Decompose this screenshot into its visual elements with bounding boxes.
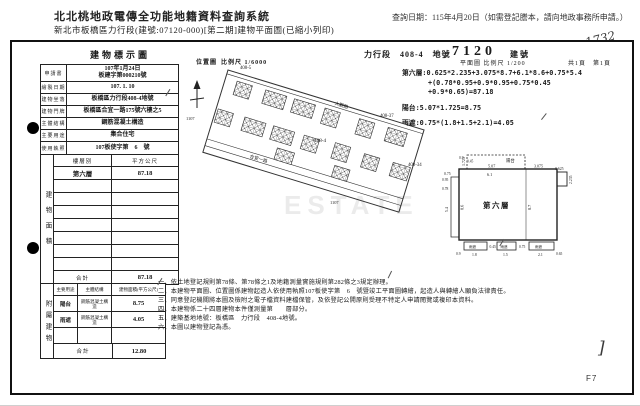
info-label: 繪製日期 xyxy=(41,82,67,94)
empty-cell xyxy=(54,232,112,245)
north-arrow-icon xyxy=(190,80,204,108)
annex-total-row: 合計12.80 xyxy=(54,344,165,358)
floor-header-row: 樓層別平方公尺 xyxy=(54,155,178,167)
note-line: 四、本建物係二十四層建物本件僅測量第 層部分。 xyxy=(158,305,574,314)
empty-cell xyxy=(54,245,112,258)
balcony-outline xyxy=(467,155,525,169)
annex-row xyxy=(54,328,165,344)
map-title: 位置圖比例尺 1/6000 xyxy=(196,58,267,66)
annex-structure xyxy=(78,328,112,344)
info-row: 主體結構鋼筋混凝土構造 xyxy=(41,118,178,130)
location-map: 位置圖比例尺 1/6000 大觀路 合宜一路 408-5 408-37 1107 xyxy=(184,54,442,266)
empty-cell xyxy=(112,245,178,258)
floor-header: 樓層別 xyxy=(54,155,112,167)
dim-09: 0.9 xyxy=(459,156,464,160)
info-row: 繪製日期107. 1. 10 xyxy=(41,82,178,94)
floor-empty-row xyxy=(54,206,178,219)
area-header: 平方公尺 xyxy=(112,155,178,167)
lot-1107-w: 1107 xyxy=(186,116,195,121)
handwritten-bracket: ] xyxy=(598,338,605,358)
canopy-label-3: 雨遮 xyxy=(535,244,543,249)
canopy-label-2: 雨遮 xyxy=(501,244,509,249)
empty-cell xyxy=(112,219,178,232)
info-value: 107年1月24日 板建字第000210號 xyxy=(67,65,178,82)
dim-078: 0.78 xyxy=(442,187,448,191)
annex-use: 雨遮 xyxy=(54,312,78,328)
info-label: 使用執照 xyxy=(41,142,67,154)
info-row: 申請書107年1月24日 板建字第000210號 xyxy=(41,65,178,82)
info-value: 板橋區力行段408-4地號 xyxy=(67,94,178,106)
info-row: 建物坐落板橋區力行段408-4地號 xyxy=(41,94,178,106)
info-label: 建物門牌 xyxy=(41,106,67,118)
dim-main-h: 8.6 xyxy=(460,205,465,210)
page-code: F7 xyxy=(586,374,597,383)
info-row: 建物門牌板橋區合宜一路175號六樓之5 xyxy=(41,106,178,118)
page-count: 共1頁 第1頁 xyxy=(568,58,611,67)
note-line: 六、本圖以建物登記為憑。 xyxy=(158,323,574,332)
floor-empty-row xyxy=(54,245,178,258)
floor-area-table: 建物面積 樓層別平方公尺第六層87.18合計87.18 xyxy=(40,154,179,285)
floor-empty-row xyxy=(54,219,178,232)
dim-095: 0.95 xyxy=(442,178,448,182)
dim-065: 0.65 xyxy=(556,252,562,256)
basic-info-table: 申請書107年1月24日 板建字第000210號繪製日期107. 1. 10建物… xyxy=(40,64,179,155)
empty-cell xyxy=(54,180,112,193)
dim-075b: 0.75 xyxy=(519,245,525,249)
plan-scale: 比例尺 1/200 xyxy=(484,61,526,67)
empty-cell xyxy=(54,193,112,206)
parcel-label-main: 408-4 xyxy=(314,138,327,144)
annex-structure: 鋼筋混凝土構造 xyxy=(78,296,112,312)
annex-total-value: 12.80 xyxy=(113,344,165,358)
dim-045b: 0.45 xyxy=(490,245,496,249)
scanned-document: 建物標示圖 力行段 408-4 地號 7120 建號 申請書107年1月24日 … xyxy=(10,40,634,395)
dim-09b: 0.9 xyxy=(456,252,461,256)
binder-hole-top xyxy=(27,122,39,134)
query-date: 查詢日期：115年4月20日（如需登記謄本，請向地政事務所申請。） xyxy=(392,12,628,23)
empty-cell xyxy=(112,232,178,245)
dim-balcony-w: 5.07 xyxy=(488,164,495,169)
info-value: 107板使字第 6 號 xyxy=(67,142,178,154)
floor-name: 第六層 xyxy=(54,167,112,180)
system-title: 北北桃地政電傳全功能地籍資料查詢系統 xyxy=(54,8,270,24)
floor-area: 87.18 xyxy=(112,167,178,180)
info-label: 申請書 xyxy=(41,65,67,82)
dim-c1: 1.8 xyxy=(472,253,477,257)
floor-empty-row xyxy=(54,193,178,206)
annex-section-label: 附屬建物 xyxy=(41,284,54,358)
dim-c2: 1.5 xyxy=(503,253,508,257)
dim-east-w: 0.625 xyxy=(555,167,564,171)
query-system-page: 北北桃地政電傳全功能地籍資料查詢系統 查詢日期：115年4月20日（如需登記謄本… xyxy=(0,0,640,406)
annex-row: 陽台鋼筋混凝土構造8.75 xyxy=(54,296,165,312)
doc-title: 建物標示圖 xyxy=(90,48,150,61)
empty-cell xyxy=(112,180,178,193)
info-row: 使用執照107板使字第 6 號 xyxy=(41,142,178,154)
document-subtitle: 新北市板橋區力行段(建號:07120-000)[第二期]建物平面圖(已縮小列印) xyxy=(54,24,334,36)
canopy-label-1: 雨遮 xyxy=(469,244,477,249)
info-label: 主要用途 xyxy=(41,130,67,142)
annex-table: 附屬建物 主要用途主體結構建物面積(平方公尺)陽台鋼筋混凝土構造8.75雨遮鋼筋… xyxy=(40,283,166,359)
annex-use: 陽台 xyxy=(54,296,78,312)
info-value: 集合住宅 xyxy=(67,130,178,142)
annex-row: 雨遮鋼筋混凝土構造4.05 xyxy=(54,312,165,328)
empty-cell xyxy=(54,206,112,219)
lot-1107-ne: 1107 xyxy=(406,122,415,127)
note-line: 二、本建物平面圖、位置圖係建物起造人依使用執照107板使字第 6 號暨竣工平面圖… xyxy=(158,287,574,296)
annex-use-header: 主要用途 xyxy=(54,284,78,296)
annex-rows: 主要用途主體結構建物面積(平方公尺)陽台鋼筋混凝土構造8.75雨遮鋼筋混凝土構造… xyxy=(54,284,165,358)
empty-cell xyxy=(112,193,178,206)
parcel-label-ne: 408-37 xyxy=(380,114,394,119)
annex-header-row: 主要用途主體結構建物面積(平方公尺) xyxy=(54,284,165,296)
parcel-label-nw: 408-5 xyxy=(240,66,252,71)
dim-right-h: 8.7 xyxy=(527,205,532,210)
annex-structure: 鋼筋混凝土構造 xyxy=(78,312,112,328)
floor-empty-row xyxy=(54,258,178,271)
dim-c3: 2.1 xyxy=(538,253,543,257)
empty-cell xyxy=(112,258,178,271)
dim-west-h: 5.4 xyxy=(445,207,449,212)
west-notch-outline xyxy=(451,177,459,237)
floor-row: 第六層87.18 xyxy=(54,167,178,180)
east-annex-outline xyxy=(557,172,567,186)
annex-structure-header: 主體結構 xyxy=(78,284,112,296)
room-label: 第六層 xyxy=(483,200,510,210)
annex-use xyxy=(54,328,78,344)
floor-empty-row xyxy=(54,232,178,245)
info-label: 建物坐落 xyxy=(41,94,67,106)
note-line: 一、依土地登記規則第78條、第78條之1及地籍測量實施規則第282條之3規定辦理… xyxy=(158,278,574,287)
info-value: 107. 1. 10 xyxy=(67,82,178,94)
info-label: 主體結構 xyxy=(41,118,67,130)
note-line: 五、建築基地地號：板橋區 力行段 408-4地號。 xyxy=(158,314,574,323)
floor-empty-row xyxy=(54,180,178,193)
dim-right-w: 3.075 xyxy=(534,164,543,169)
info-value: 鋼筋混凝土構造 xyxy=(67,118,178,130)
info-row: 主要用途集合住宅 xyxy=(41,130,178,142)
floor-plan: 陽台 5.07 1.725 6.1 第六層 8.6 8.7 3.075 0.62… xyxy=(436,148,626,274)
dim-main-w: 6.1 xyxy=(487,172,492,177)
balcony-label: 陽台 xyxy=(506,157,515,164)
notes-block: 一、依土地登記規則第78條、第78條之1及地籍測量實施規則第282條之3規定辦理… xyxy=(158,278,574,332)
dim-west-w: 0.75 xyxy=(444,172,451,176)
dim-east-h: 2.235 xyxy=(569,175,573,184)
empty-cell xyxy=(112,206,178,219)
plan-label: 平面圖 xyxy=(460,61,481,67)
dim-045: 0.45 xyxy=(467,160,473,164)
note-line: 三、同意登記機關將本圖及檢附之電子檔資料建檔保管，及依登記公開原則受理不特定人申… xyxy=(158,296,574,305)
empty-cell xyxy=(54,258,112,271)
floor-area-rows: 樓層別平方公尺第六層87.18合計87.18 xyxy=(54,155,178,284)
plan-scale-header: 平面圖 比例尺 1/200 xyxy=(460,58,526,67)
floor-area-section-label: 建物面積 xyxy=(41,155,54,284)
parcel-label-e: 408-34 xyxy=(408,163,422,168)
empty-cell xyxy=(54,219,112,232)
annex-total-label: 合計 xyxy=(54,344,113,358)
binder-hole-bottom xyxy=(27,242,39,254)
info-value: 板橋區合宜一路175號六樓之5 xyxy=(67,106,178,118)
watermark: ESTATE xyxy=(284,190,419,221)
